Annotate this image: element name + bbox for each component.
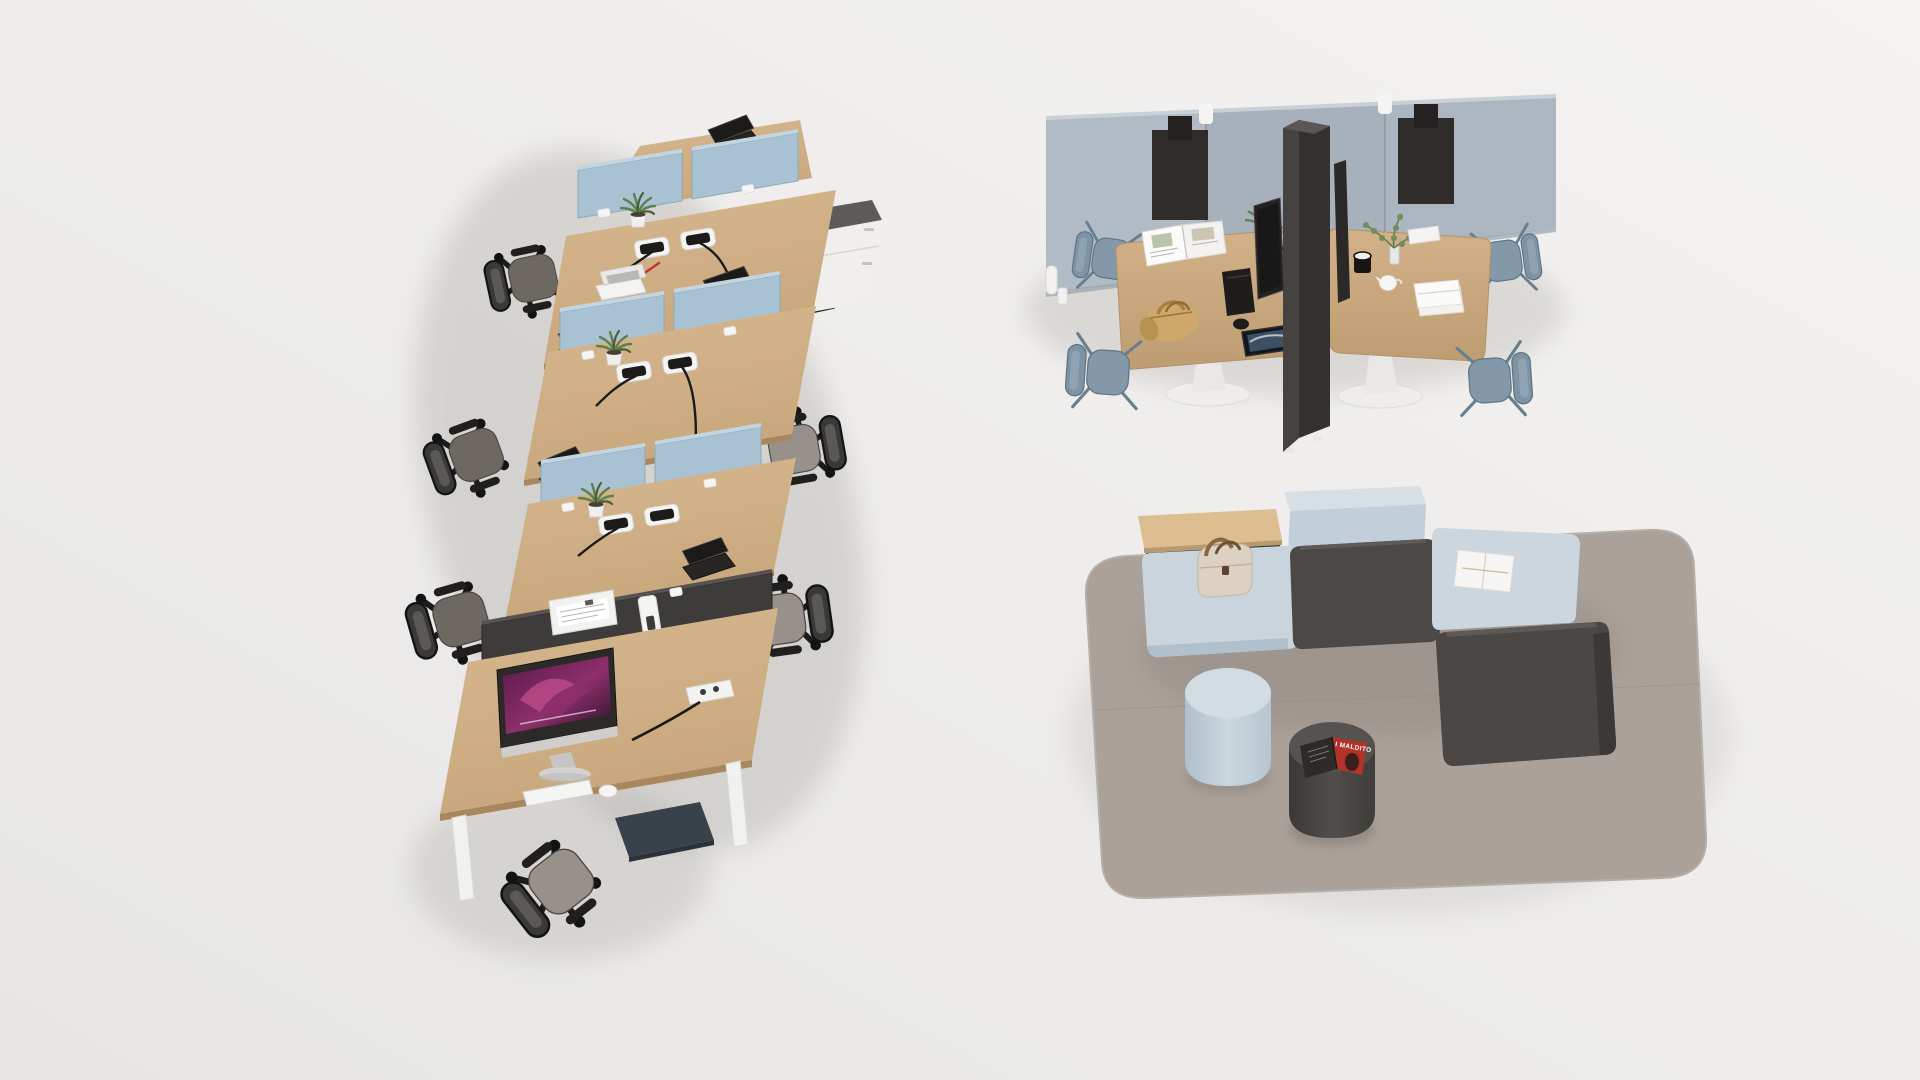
office-render: I MALDITO — [0, 0, 1920, 1080]
white-book — [1454, 550, 1514, 592]
panel-hook — [1378, 94, 1392, 114]
felt-pocket — [1152, 116, 1208, 220]
lounge-area: I MALDITO — [1086, 486, 1706, 898]
sofa-chaise — [1436, 622, 1616, 766]
monitor — [1254, 198, 1284, 299]
meeting-mouse — [1233, 319, 1249, 330]
mouse — [599, 785, 617, 797]
black-mug — [1354, 252, 1371, 273]
meeting-table-right — [1328, 229, 1491, 361]
pouf-blue — [1185, 668, 1271, 794]
sofa-seat-charcoal — [1290, 539, 1440, 649]
felt-pocket — [1398, 104, 1454, 204]
pouf-charcoal: I MALDITO — [1289, 722, 1375, 846]
panel-hook — [1199, 104, 1213, 124]
scene-canvas: I MALDITO — [0, 0, 1920, 1080]
center-divider — [1283, 120, 1330, 453]
handbag — [1198, 540, 1252, 597]
folded-towels — [1414, 280, 1464, 316]
